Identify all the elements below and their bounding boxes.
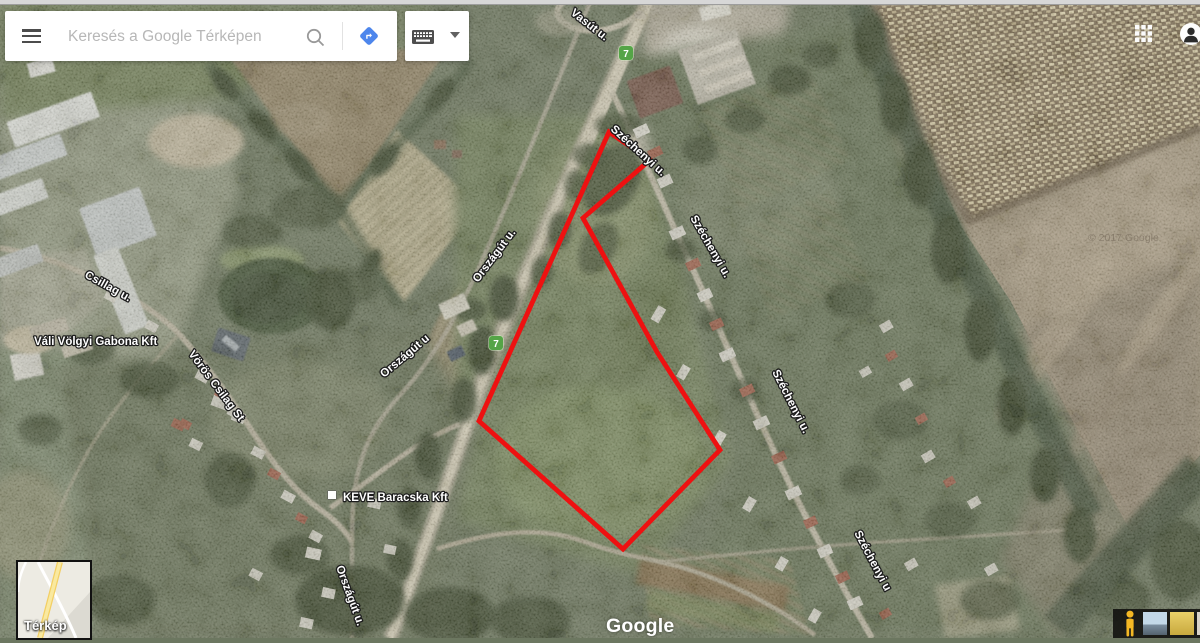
svg-text:© 2017 Google: © 2017 Google — [1088, 232, 1159, 244]
svg-text:7: 7 — [623, 49, 629, 60]
svg-text:Váli Völgyi Gabona Kft: Váli Völgyi Gabona Kft — [34, 336, 157, 348]
svg-text:7: 7 — [493, 339, 499, 350]
svg-text:KEVE Baracska Kft: KEVE Baracska Kft — [343, 492, 448, 504]
